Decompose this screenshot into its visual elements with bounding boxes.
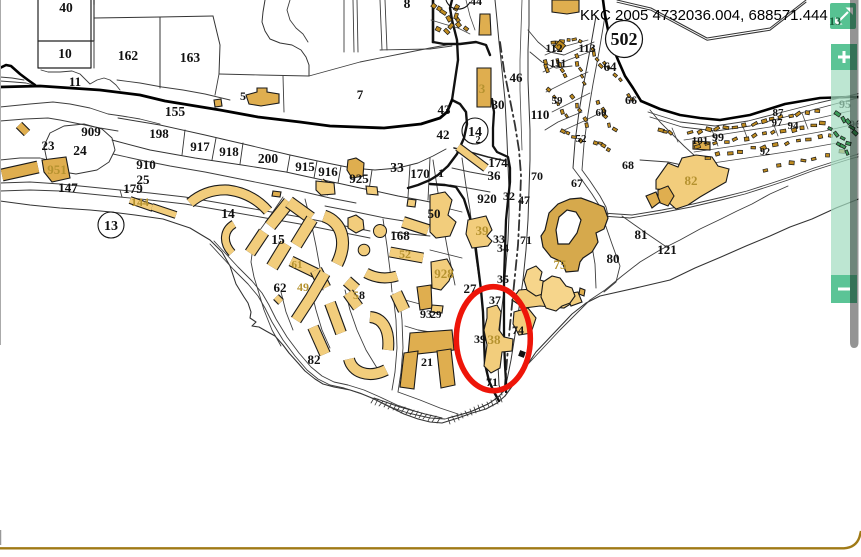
- svg-text:23: 23: [42, 138, 56, 153]
- svg-text:74: 74: [512, 323, 524, 337]
- svg-text:3: 3: [479, 81, 486, 96]
- svg-text:101: 101: [692, 135, 709, 147]
- svg-text:37: 37: [489, 293, 501, 307]
- svg-text:915: 915: [295, 159, 315, 174]
- svg-text:113: 113: [578, 41, 595, 55]
- svg-text:75: 75: [554, 257, 568, 272]
- svg-text:82: 82: [685, 173, 698, 188]
- svg-text:35: 35: [497, 272, 509, 286]
- svg-text:38: 38: [488, 332, 502, 347]
- svg-text:917: 917: [190, 139, 210, 154]
- svg-text:909: 909: [81, 124, 101, 139]
- svg-text:52: 52: [399, 247, 411, 261]
- svg-text:80: 80: [607, 251, 620, 266]
- svg-text:910: 910: [136, 157, 156, 172]
- svg-text:47: 47: [518, 193, 530, 207]
- svg-text:920: 920: [477, 191, 497, 206]
- svg-text:62: 62: [274, 280, 287, 295]
- svg-text:81: 81: [635, 227, 648, 242]
- svg-text:60: 60: [596, 107, 608, 119]
- svg-text:502: 502: [611, 29, 638, 49]
- svg-text:36: 36: [488, 168, 502, 183]
- svg-text:61: 61: [292, 259, 303, 271]
- svg-text:112: 112: [545, 41, 562, 55]
- svg-text:21: 21: [421, 355, 433, 369]
- svg-text:25: 25: [137, 172, 151, 187]
- svg-text:64: 64: [604, 59, 618, 74]
- svg-text:82: 82: [308, 352, 321, 367]
- svg-text:29: 29: [431, 309, 443, 321]
- svg-text:918: 918: [219, 144, 239, 159]
- svg-text:1: 1: [438, 166, 444, 180]
- svg-text:162: 162: [118, 48, 139, 63]
- svg-text:39: 39: [474, 332, 486, 346]
- svg-text:97: 97: [772, 117, 784, 129]
- svg-text:5: 5: [240, 89, 246, 103]
- svg-text:68: 68: [622, 158, 634, 172]
- svg-text:200: 200: [258, 151, 279, 166]
- svg-text:24: 24: [73, 143, 87, 158]
- svg-text:71: 71: [486, 375, 498, 389]
- svg-text:33: 33: [390, 160, 404, 175]
- svg-text:15: 15: [271, 232, 285, 247]
- svg-text:13: 13: [104, 219, 118, 234]
- svg-text:5: 5: [353, 288, 359, 302]
- svg-text:110: 110: [531, 107, 550, 122]
- svg-text:99: 99: [712, 130, 724, 144]
- svg-text:40: 40: [59, 0, 73, 15]
- svg-text:144: 144: [131, 195, 149, 209]
- svg-text:49: 49: [297, 280, 309, 294]
- svg-text:8: 8: [359, 288, 365, 302]
- svg-text:32: 32: [503, 189, 515, 203]
- svg-text:7: 7: [357, 87, 364, 102]
- svg-text:KKC 2005 4732036.004, 688571.4: KKC 2005 4732036.004, 688571.444: [580, 7, 828, 24]
- svg-text:59: 59: [552, 95, 564, 107]
- svg-text:951: 951: [47, 162, 67, 177]
- svg-text:44: 44: [470, 0, 482, 8]
- svg-text:71: 71: [520, 233, 532, 247]
- svg-text:163: 163: [180, 50, 201, 65]
- svg-text:10: 10: [58, 46, 72, 61]
- svg-text:42: 42: [437, 127, 450, 142]
- svg-text:50: 50: [428, 206, 441, 221]
- svg-text:916: 916: [318, 164, 338, 179]
- svg-text:111: 111: [550, 56, 567, 70]
- svg-text:168: 168: [390, 228, 410, 243]
- svg-text:155: 155: [165, 104, 186, 119]
- svg-text:67: 67: [571, 176, 583, 190]
- svg-text:8: 8: [404, 0, 411, 11]
- svg-text:94: 94: [788, 120, 800, 132]
- svg-text:147: 147: [58, 180, 78, 195]
- svg-text:34: 34: [497, 241, 509, 255]
- svg-text:11: 11: [69, 74, 81, 89]
- svg-text:46: 46: [510, 70, 524, 85]
- svg-text:13: 13: [829, 14, 841, 28]
- svg-text:198: 198: [149, 126, 169, 141]
- svg-text:92: 92: [760, 147, 770, 158]
- svg-text:70: 70: [531, 169, 543, 183]
- svg-text:928: 928: [434, 266, 454, 281]
- svg-text:30: 30: [492, 97, 505, 112]
- svg-text:43: 43: [438, 102, 452, 117]
- svg-text:14: 14: [221, 206, 235, 221]
- svg-text:66: 66: [625, 93, 637, 107]
- svg-text:52: 52: [576, 133, 588, 145]
- svg-text:925: 925: [349, 171, 369, 186]
- svg-text:121: 121: [657, 242, 677, 257]
- svg-text:170: 170: [410, 166, 430, 181]
- svg-text:14: 14: [468, 125, 482, 140]
- svg-text:39: 39: [476, 223, 490, 238]
